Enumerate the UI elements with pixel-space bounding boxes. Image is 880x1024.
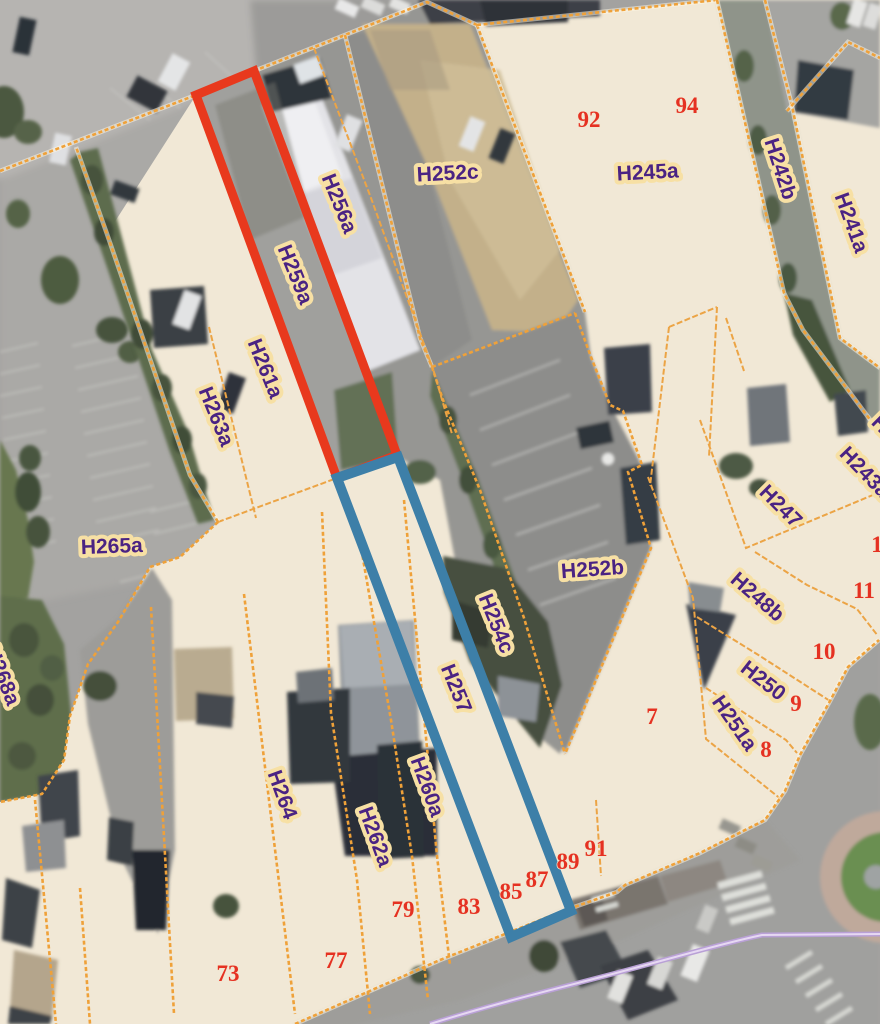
svg-text:9: 9 (790, 691, 802, 716)
svg-text:79: 79 (392, 897, 415, 922)
svg-text:89: 89 (557, 849, 580, 874)
svg-text:77: 77 (325, 948, 348, 973)
svg-text:87: 87 (526, 867, 549, 892)
svg-text:85: 85 (500, 879, 523, 904)
svg-text:91: 91 (585, 836, 608, 861)
svg-text:92: 92 (578, 107, 601, 132)
svg-text:8: 8 (760, 737, 772, 762)
svg-text:H252b: H252b (560, 556, 624, 583)
svg-text:10: 10 (813, 639, 836, 664)
svg-text:94: 94 (676, 93, 700, 118)
svg-text:H252c: H252c (416, 160, 479, 186)
svg-text:H245a: H245a (616, 159, 679, 185)
svg-text:11: 11 (853, 578, 875, 603)
svg-text:83: 83 (458, 894, 481, 919)
svg-text:73: 73 (217, 961, 240, 986)
svg-text:H265a: H265a (80, 534, 143, 559)
svg-text:7: 7 (646, 704, 658, 729)
svg-text:1: 1 (871, 532, 880, 557)
